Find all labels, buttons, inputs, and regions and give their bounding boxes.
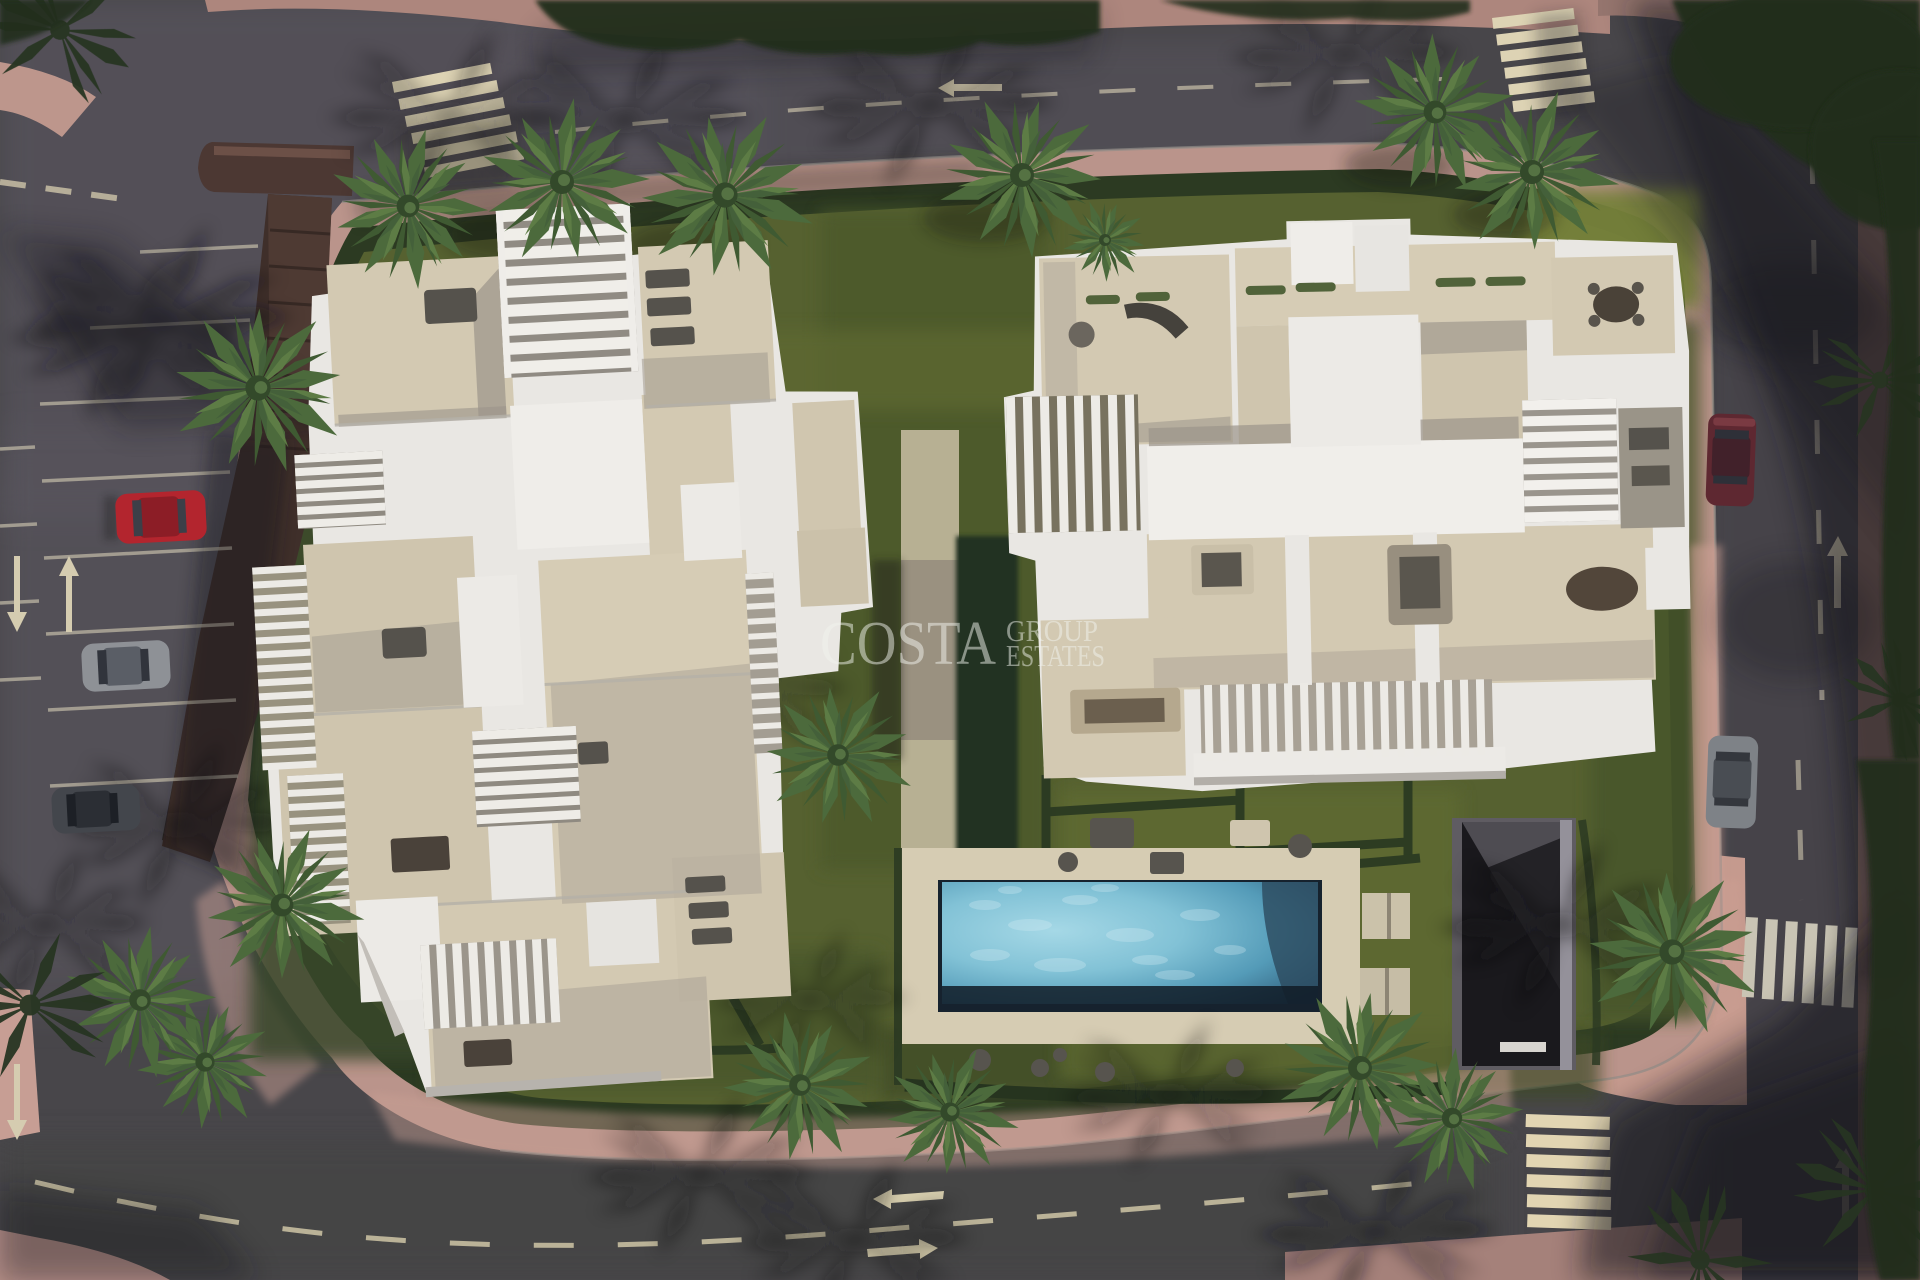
svg-text:COSTA: COSTA xyxy=(820,610,996,678)
svg-text:ESTATES: ESTATES xyxy=(1006,638,1105,673)
